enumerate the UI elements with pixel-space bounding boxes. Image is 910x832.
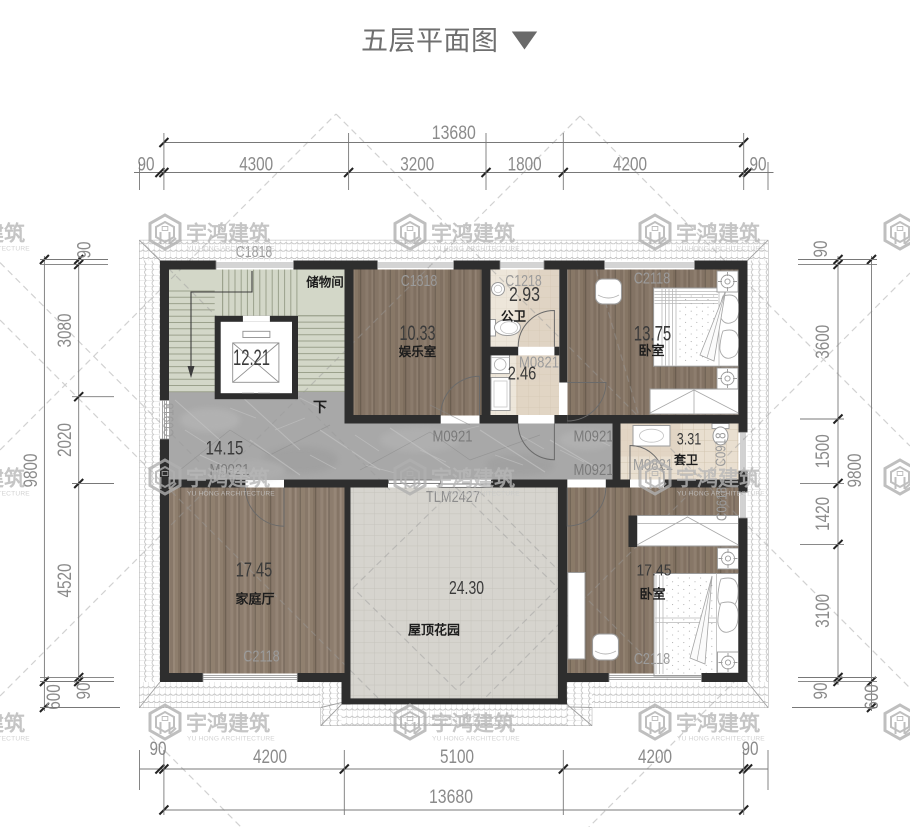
- svg-text:9800: 9800: [845, 454, 866, 488]
- svg-text:90: 90: [811, 241, 832, 258]
- svg-text:1420: 1420: [813, 497, 834, 531]
- svg-text:储物间: 储物间: [305, 275, 344, 290]
- svg-text:套卫: 套卫: [673, 452, 698, 467]
- svg-text:600: 600: [44, 684, 65, 710]
- svg-text:4200: 4200: [253, 747, 287, 768]
- svg-text:屋顶花园: 屋顶花园: [408, 623, 460, 638]
- svg-text:五层平面图: 五层平面图: [361, 26, 499, 56]
- svg-text:4300: 4300: [239, 155, 273, 176]
- svg-text:C2118: C2118: [634, 271, 671, 288]
- svg-text:2020: 2020: [55, 423, 76, 457]
- svg-text:1800: 1800: [508, 155, 542, 176]
- svg-text:13680: 13680: [429, 787, 473, 808]
- svg-text:M0921: M0921: [433, 429, 473, 446]
- svg-text:3.31: 3.31: [677, 430, 702, 449]
- svg-text:M0921: M0921: [574, 462, 614, 479]
- svg-text:C2118: C2118: [634, 651, 671, 668]
- svg-text:家庭厅: 家庭厅: [235, 592, 274, 607]
- svg-text:C0918: C0918: [161, 403, 178, 437]
- svg-text:卧室: 卧室: [639, 587, 665, 602]
- svg-text:4200: 4200: [638, 747, 672, 768]
- svg-text:C1818: C1818: [401, 273, 438, 290]
- svg-text:3100: 3100: [813, 594, 834, 628]
- svg-text:90: 90: [138, 155, 155, 176]
- svg-text:下: 下: [313, 399, 327, 415]
- svg-text:C2118: C2118: [243, 649, 280, 666]
- svg-text:M0921: M0921: [574, 429, 614, 446]
- svg-text:3200: 3200: [400, 155, 434, 176]
- svg-text:90: 90: [75, 242, 96, 259]
- svg-text:17.45: 17.45: [637, 563, 672, 580]
- svg-text:3600: 3600: [813, 325, 834, 359]
- svg-text:5100: 5100: [440, 747, 474, 768]
- svg-text:4200: 4200: [613, 155, 647, 176]
- svg-text:娱乐室: 娱乐室: [399, 344, 437, 359]
- svg-text:24.30: 24.30: [449, 577, 484, 598]
- svg-text:1500: 1500: [813, 434, 834, 468]
- svg-text:600: 600: [862, 684, 883, 710]
- svg-text:14.15: 14.15: [206, 438, 244, 460]
- svg-text:90: 90: [74, 683, 95, 700]
- svg-text:卧室: 卧室: [638, 343, 664, 358]
- svg-text:2.93: 2.93: [509, 284, 540, 306]
- svg-text:3080: 3080: [55, 314, 76, 348]
- svg-text:12.21: 12.21: [233, 345, 270, 370]
- svg-text:90: 90: [750, 155, 767, 176]
- svg-text:13680: 13680: [432, 123, 476, 144]
- svg-text:10.33: 10.33: [400, 321, 436, 345]
- svg-text:4520: 4520: [55, 564, 76, 598]
- svg-text:90: 90: [811, 683, 832, 700]
- svg-text:2.46: 2.46: [508, 364, 537, 384]
- svg-text:C0918: C0918: [713, 433, 730, 467]
- svg-text:17.45: 17.45: [236, 560, 273, 582]
- svg-text:公卫: 公卫: [501, 310, 527, 324]
